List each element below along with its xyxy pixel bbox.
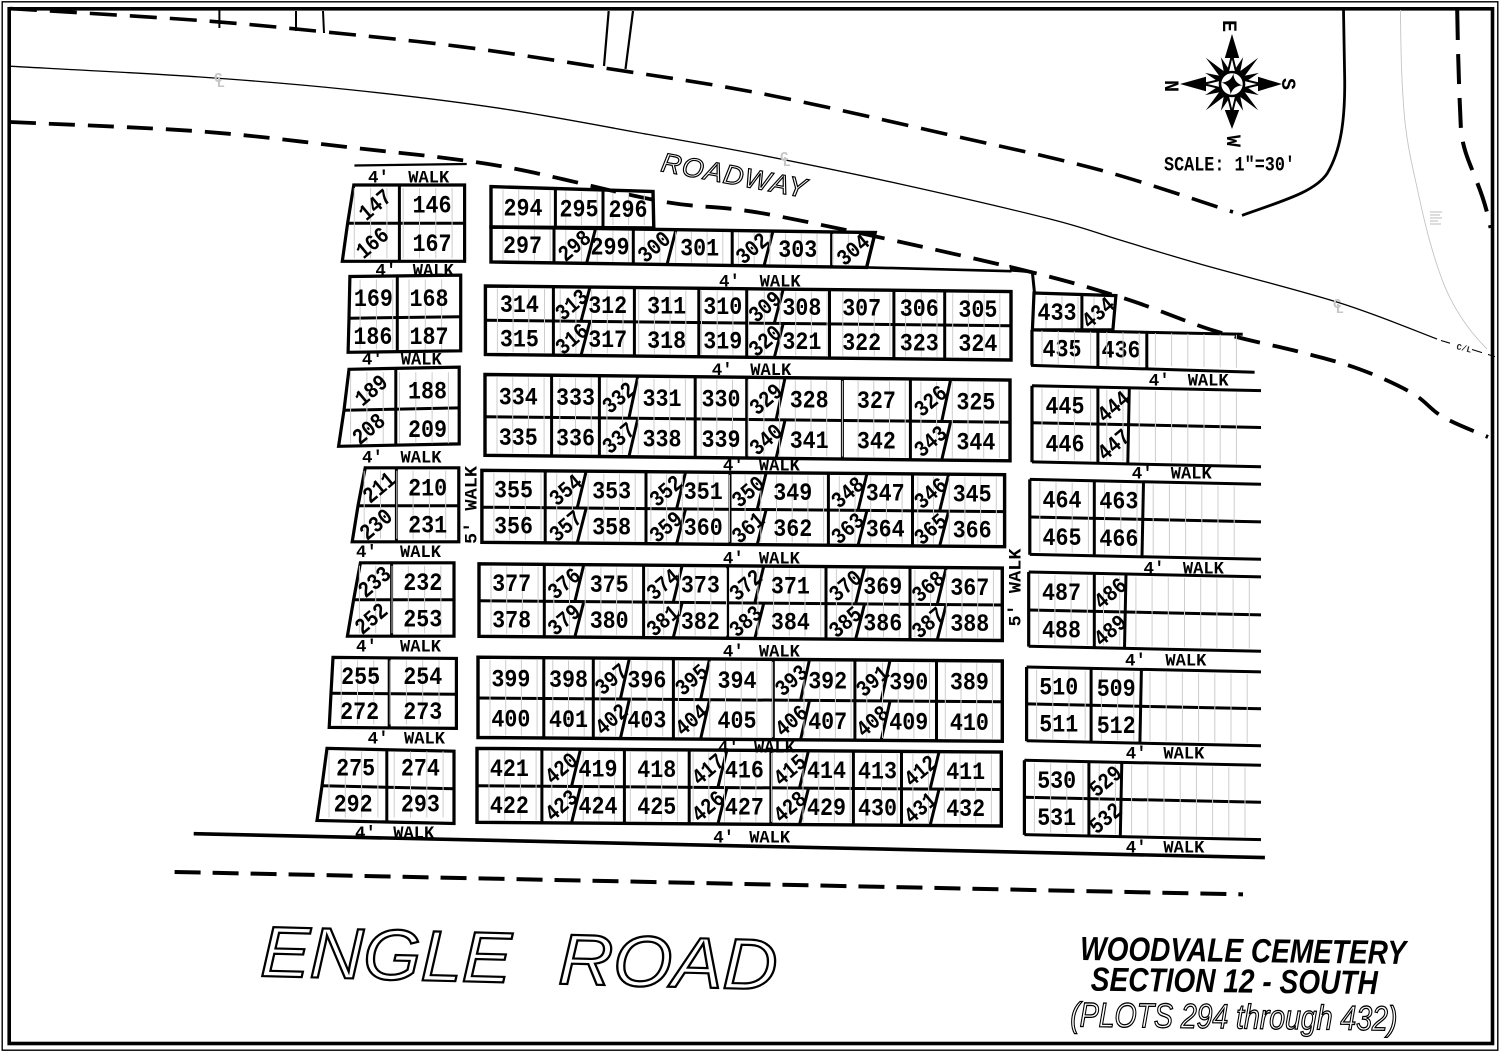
svg-text:351: 351: [684, 478, 723, 507]
svg-text:WALK: WALK: [401, 449, 442, 469]
svg-text:331: 331: [643, 385, 682, 414]
svg-text:394: 394: [718, 667, 757, 696]
svg-text:N: N: [1158, 80, 1181, 92]
svg-text:311: 311: [647, 293, 686, 322]
svg-text:464: 464: [1043, 486, 1082, 515]
svg-text:411: 411: [946, 758, 985, 787]
svg-text:430: 430: [858, 794, 897, 823]
svg-text:4': 4': [356, 638, 377, 658]
svg-text:317: 317: [588, 326, 627, 355]
svg-text:425: 425: [637, 793, 676, 822]
svg-text:4': 4': [368, 169, 389, 189]
svg-text:364: 364: [866, 516, 905, 545]
svg-text:414: 414: [807, 757, 846, 786]
svg-text:5' WALK: 5' WALK: [1007, 548, 1027, 627]
svg-text:399: 399: [491, 665, 530, 694]
svg-text:338: 338: [643, 425, 682, 454]
svg-text:312: 312: [588, 292, 627, 321]
svg-text:512: 512: [1097, 712, 1136, 741]
svg-text:432: 432: [946, 795, 985, 824]
svg-text:530: 530: [1037, 767, 1076, 796]
svg-text:421: 421: [490, 755, 529, 784]
svg-text:413: 413: [858, 757, 897, 786]
svg-text:169: 169: [354, 285, 393, 314]
svg-text:310: 310: [703, 293, 742, 322]
svg-text:336: 336: [556, 425, 595, 454]
svg-text:347: 347: [866, 480, 905, 509]
svg-text:388: 388: [950, 610, 989, 639]
svg-text:380: 380: [590, 607, 629, 636]
svg-text:369: 369: [863, 573, 902, 602]
svg-text:WALK: WALK: [413, 262, 454, 282]
svg-text:324: 324: [958, 330, 997, 359]
svg-text:167: 167: [413, 230, 452, 259]
svg-text:4': 4': [375, 262, 396, 282]
svg-text:511: 511: [1039, 711, 1078, 740]
svg-text:4': 4': [356, 543, 377, 563]
svg-text:4': 4': [718, 739, 739, 759]
svg-text:362: 362: [773, 515, 812, 544]
svg-text:E: E: [1216, 20, 1239, 32]
svg-text:488: 488: [1042, 616, 1081, 645]
svg-text:4': 4': [723, 457, 744, 477]
svg-text:210: 210: [408, 474, 447, 503]
svg-text:342: 342: [857, 428, 896, 457]
svg-text:377: 377: [492, 570, 531, 599]
svg-text:509: 509: [1097, 675, 1136, 704]
svg-text:275: 275: [336, 755, 375, 784]
svg-text:349: 349: [773, 479, 812, 508]
svg-text:429: 429: [807, 794, 846, 823]
svg-text:360: 360: [684, 514, 723, 543]
svg-text:272: 272: [340, 698, 379, 727]
svg-text:510: 510: [1039, 674, 1078, 703]
svg-text:254: 254: [403, 663, 442, 692]
svg-text:330: 330: [702, 386, 741, 415]
svg-text:WALK: WALK: [759, 643, 800, 663]
svg-text:407: 407: [808, 708, 847, 737]
svg-text:WALK: WALK: [759, 550, 800, 570]
svg-text:401: 401: [549, 706, 588, 735]
svg-text:187: 187: [410, 323, 449, 352]
svg-text:398: 398: [549, 666, 588, 695]
svg-text:WALK: WALK: [754, 739, 795, 759]
svg-text:305: 305: [958, 296, 997, 325]
svg-text:375: 375: [590, 571, 629, 600]
svg-text:5' WALK: 5' WALK: [463, 465, 483, 544]
svg-text:ROAD: ROAD: [557, 920, 778, 1006]
svg-text:315: 315: [500, 325, 539, 354]
svg-text:4': 4': [723, 550, 744, 570]
svg-text:339: 339: [702, 426, 741, 455]
svg-text:188: 188: [408, 377, 447, 406]
svg-text:436: 436: [1102, 337, 1141, 366]
svg-text:301: 301: [680, 235, 719, 264]
svg-text:4': 4': [1144, 560, 1165, 580]
svg-text:435: 435: [1043, 336, 1082, 365]
svg-text:293: 293: [401, 791, 440, 820]
svg-text:445: 445: [1046, 393, 1085, 422]
svg-text:273: 273: [403, 698, 442, 727]
svg-text:416: 416: [725, 757, 764, 786]
svg-text:168: 168: [410, 285, 449, 314]
svg-text:4': 4': [712, 361, 733, 381]
svg-text:294: 294: [504, 195, 543, 224]
svg-text:341: 341: [790, 427, 829, 456]
svg-text:392: 392: [808, 668, 847, 697]
svg-text:466: 466: [1099, 525, 1138, 554]
svg-text:487: 487: [1042, 579, 1081, 608]
svg-text:419: 419: [579, 756, 618, 785]
svg-text:297: 297: [503, 232, 542, 261]
svg-text:WALK: WALK: [749, 829, 790, 849]
svg-text:(PLOTS 294 through 432): (PLOTS 294 through 432): [1070, 996, 1397, 1038]
svg-text:318: 318: [647, 327, 686, 356]
svg-text:531: 531: [1037, 804, 1076, 833]
svg-text:296: 296: [609, 196, 648, 225]
svg-text:446: 446: [1046, 431, 1085, 460]
svg-text:146: 146: [413, 192, 452, 221]
svg-text:W: W: [1220, 135, 1243, 147]
svg-text:L: L: [217, 76, 225, 92]
svg-text:255: 255: [341, 663, 380, 692]
svg-text:371: 371: [771, 572, 810, 601]
svg-text:4': 4': [368, 730, 389, 750]
svg-text:356: 356: [494, 513, 533, 542]
svg-text:WALK: WALK: [393, 824, 434, 844]
svg-text:4': 4': [723, 643, 744, 663]
svg-text:274: 274: [401, 755, 440, 784]
svg-text:325: 325: [956, 388, 995, 417]
svg-text:ENGLE: ENGLE: [260, 912, 514, 999]
svg-text:292: 292: [334, 791, 373, 820]
svg-text:186: 186: [353, 323, 392, 352]
svg-text:424: 424: [579, 792, 618, 821]
svg-text:4': 4': [355, 824, 376, 844]
svg-text:389: 389: [950, 669, 989, 698]
svg-text:373: 373: [681, 572, 720, 601]
svg-text:WALK: WALK: [1163, 744, 1204, 764]
svg-text:355: 355: [494, 477, 533, 506]
svg-text:307: 307: [842, 295, 881, 324]
svg-text:295: 295: [560, 195, 599, 224]
svg-text:358: 358: [592, 513, 631, 542]
svg-text:378: 378: [492, 606, 531, 635]
svg-text:299: 299: [591, 233, 630, 262]
svg-text:384: 384: [771, 609, 810, 638]
svg-text:4': 4': [713, 829, 734, 849]
svg-text:422: 422: [490, 792, 529, 821]
svg-text:WALK: WALK: [400, 543, 441, 563]
svg-text:314: 314: [500, 291, 539, 320]
svg-text:WALK: WALK: [400, 638, 441, 658]
svg-text:410: 410: [950, 709, 989, 738]
svg-text:333: 333: [556, 384, 595, 413]
svg-text:4': 4': [719, 273, 740, 293]
svg-text:4': 4': [1126, 839, 1147, 859]
svg-text:353: 353: [592, 477, 631, 506]
svg-text:405: 405: [718, 707, 757, 736]
svg-text:382: 382: [681, 608, 720, 637]
svg-text:418: 418: [637, 756, 676, 785]
svg-text:344: 344: [956, 429, 995, 458]
svg-text:209: 209: [408, 416, 447, 445]
svg-text:4': 4': [362, 449, 383, 469]
svg-text:306: 306: [900, 295, 939, 324]
svg-text:323: 323: [900, 330, 939, 359]
svg-text:427: 427: [725, 793, 764, 822]
svg-text:319: 319: [703, 327, 742, 356]
svg-text:433: 433: [1038, 299, 1077, 328]
svg-text:327: 327: [857, 387, 896, 416]
svg-text:321: 321: [782, 328, 821, 357]
svg-text:308: 308: [782, 294, 821, 323]
svg-text:367: 367: [950, 574, 989, 603]
svg-text:WALK: WALK: [760, 273, 801, 293]
svg-text:390: 390: [889, 668, 928, 697]
svg-text:345: 345: [953, 480, 992, 509]
svg-text:328: 328: [790, 387, 829, 416]
svg-text:WALK: WALK: [750, 361, 791, 381]
svg-text:253: 253: [403, 606, 442, 635]
svg-text:232: 232: [403, 569, 442, 598]
svg-text:S: S: [1275, 78, 1298, 90]
svg-text:303: 303: [778, 236, 817, 265]
svg-text:465: 465: [1043, 524, 1082, 553]
svg-text:WALK: WALK: [401, 350, 442, 370]
svg-text:WALK: WALK: [408, 169, 449, 189]
svg-text:366: 366: [953, 516, 992, 545]
svg-text:WALK: WALK: [404, 730, 445, 750]
svg-text:396: 396: [627, 666, 666, 695]
svg-text:409: 409: [889, 708, 928, 737]
svg-text:SECTION 12 - SOUTH: SECTION 12 - SOUTH: [1091, 962, 1379, 1003]
svg-text:335: 335: [499, 424, 538, 453]
svg-text:403: 403: [627, 707, 666, 736]
svg-text:SCALE: 1"=30': SCALE: 1"=30': [1164, 155, 1295, 178]
svg-text:400: 400: [491, 706, 530, 735]
svg-text:4': 4': [362, 350, 383, 370]
svg-text:WALK: WALK: [1163, 839, 1204, 859]
svg-text:WALK: WALK: [759, 457, 800, 477]
svg-text:231: 231: [408, 511, 447, 540]
svg-text:322: 322: [842, 329, 881, 358]
svg-text:386: 386: [863, 609, 902, 638]
svg-text:L: L: [1336, 302, 1344, 318]
svg-text:334: 334: [499, 384, 538, 413]
svg-text:WALK: WALK: [1165, 652, 1206, 672]
svg-text:463: 463: [1099, 488, 1138, 517]
